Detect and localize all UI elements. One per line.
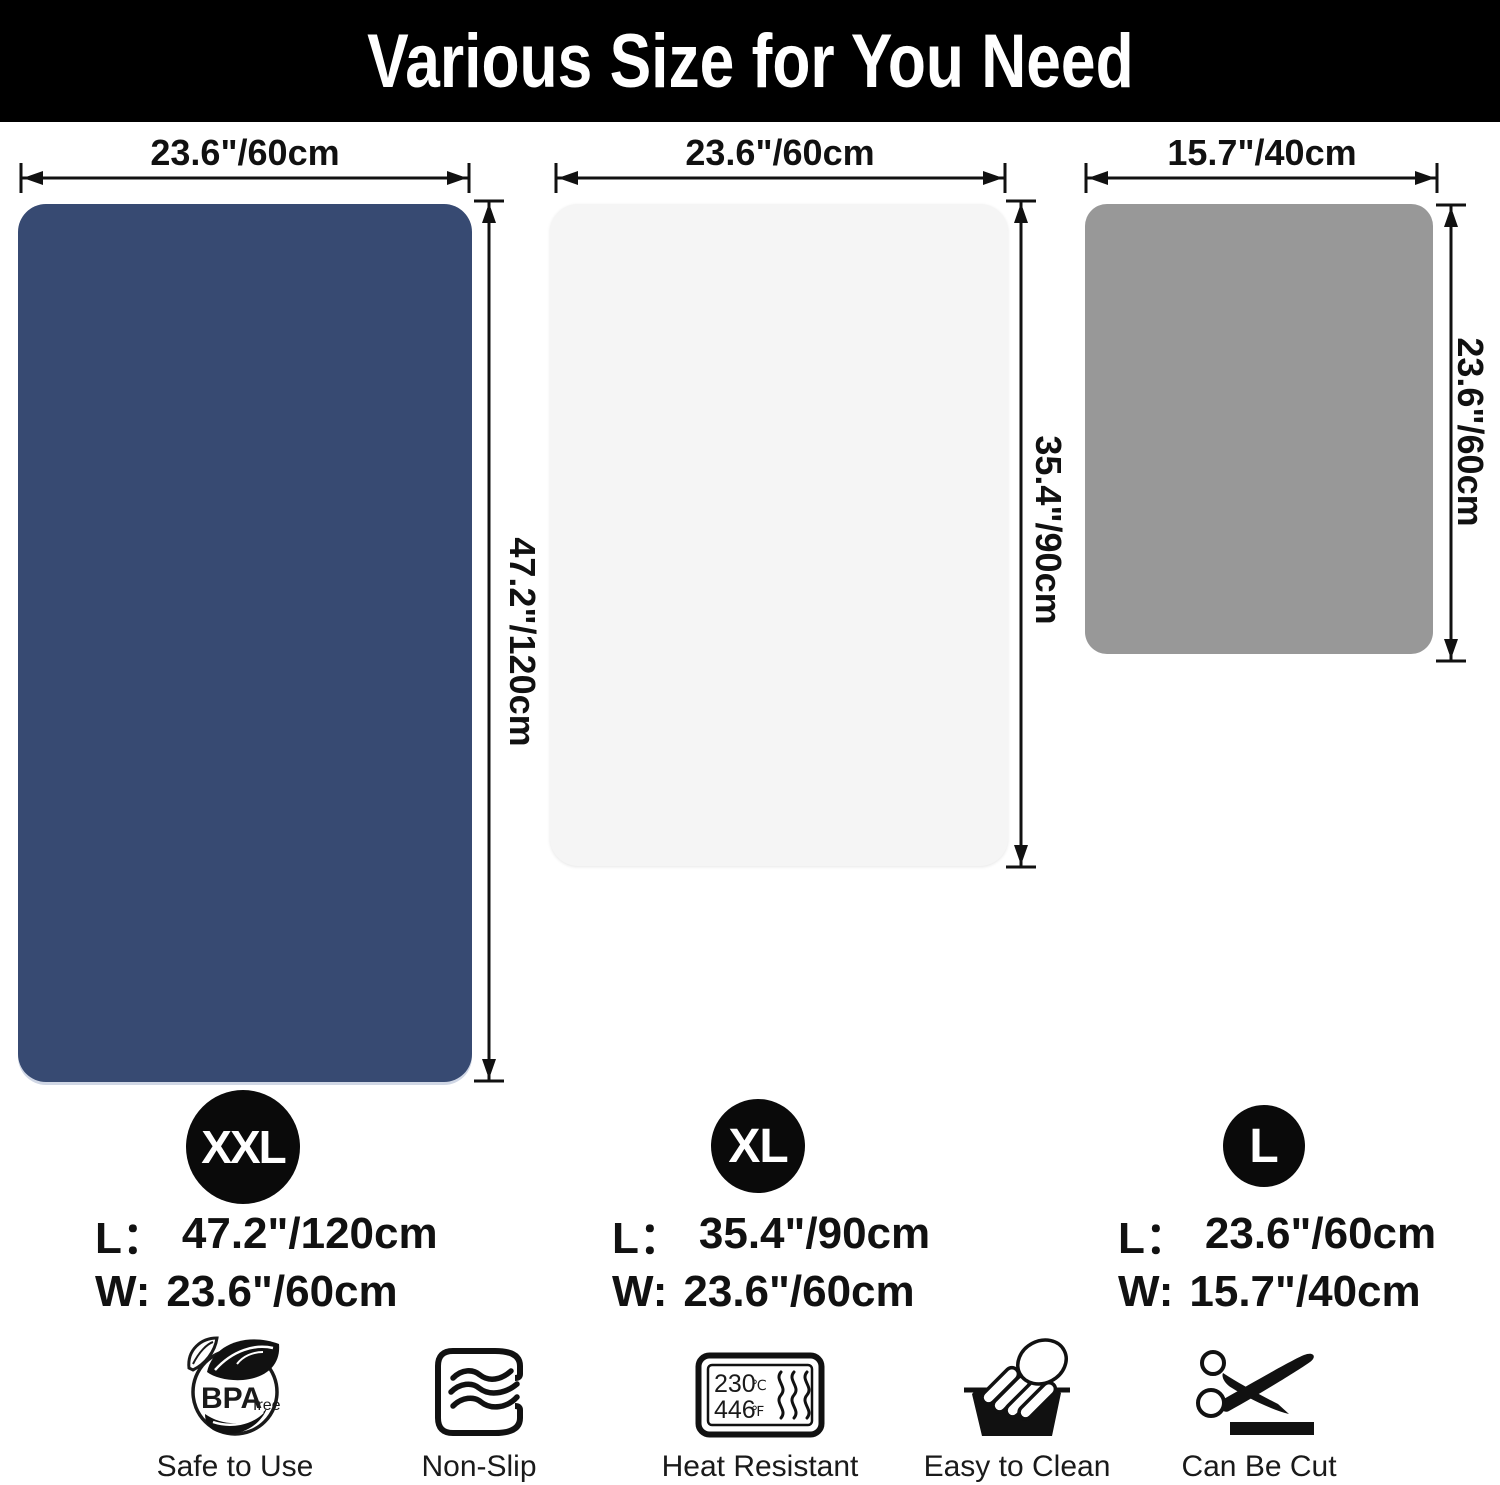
size-badge-l: L xyxy=(1223,1105,1305,1187)
spec-length-value: 35.4"/90cm xyxy=(699,1209,930,1259)
l-width-dimension-arrow xyxy=(1083,160,1440,196)
feature-safe-to-use: BPA free Safe to Use xyxy=(105,1328,365,1484)
xxl-length-dim-label: 47.2"/120cm xyxy=(501,537,543,746)
xl-width-dimension-arrow xyxy=(553,160,1008,196)
feature-label: Non-Slip xyxy=(421,1450,536,1484)
feature-non-slip: Non-Slip xyxy=(349,1328,609,1484)
spec-length-value: 23.6"/60cm xyxy=(1205,1209,1436,1259)
mat-xl xyxy=(550,204,1008,866)
spec-width-row: W: 23.6"/60cm xyxy=(612,1263,930,1321)
spec-width-row: W: 23.6"/60cm xyxy=(95,1263,438,1321)
size-spec-xl: L： 35.4"/90cm W: 23.6"/60cm xyxy=(612,1205,930,1321)
spec-width-value: 23.6"/60cm xyxy=(166,1267,397,1317)
spec-length-label: L： xyxy=(1118,1202,1189,1266)
feature-label: Easy to Clean xyxy=(924,1450,1111,1484)
temp-fahrenheit-unit: ℉ xyxy=(751,1403,764,1419)
size-badge-xxl: XXL xyxy=(186,1090,300,1204)
xl-length-dim-label: 35.4"/90cm xyxy=(1027,435,1069,624)
size-spec-l: L： 23.6"/60cm W: 15.7"/40cm xyxy=(1118,1205,1436,1321)
non-slip-icon xyxy=(433,1328,525,1442)
spec-width-row: W: 15.7"/40cm xyxy=(1118,1263,1436,1321)
l-length-dim-label: 23.6"/60cm xyxy=(1449,337,1491,526)
bpa-free-icon: BPA free xyxy=(177,1328,293,1442)
mat-l xyxy=(1085,204,1433,654)
hand-wash-icon xyxy=(958,1328,1076,1442)
spec-length-label: L： xyxy=(95,1202,166,1266)
temp-celsius-value: 230 xyxy=(714,1370,756,1398)
spec-width-label: W: xyxy=(612,1267,667,1317)
temp-celsius-unit: ℃ xyxy=(751,1377,767,1393)
header-bar: Various Size for You Need xyxy=(0,0,1500,122)
feature-label: Can Be Cut xyxy=(1181,1450,1336,1484)
size-badge-xl: XL xyxy=(711,1099,805,1193)
spec-width-value: 15.7"/40cm xyxy=(1189,1267,1420,1317)
page-title: Various Size for You Need xyxy=(367,18,1134,105)
xxl-width-dimension-arrow xyxy=(18,160,472,196)
feature-heat-resistant: 230 ℃ 446 ℉ Heat Resistant xyxy=(630,1328,890,1484)
feature-label: Heat Resistant xyxy=(662,1450,859,1484)
spec-width-label: W: xyxy=(95,1267,150,1317)
temp-fahrenheit-value: 446 xyxy=(714,1396,756,1424)
mat-xxl xyxy=(18,204,472,1082)
spec-width-value: 23.6"/60cm xyxy=(683,1267,914,1317)
heat-resistant-icon: 230 ℃ 446 ℉ xyxy=(695,1328,825,1442)
spec-length-row: L： 23.6"/60cm xyxy=(1118,1205,1436,1263)
free-text: free xyxy=(253,1397,281,1414)
feature-can-be-cut: Can Be Cut xyxy=(1129,1328,1389,1484)
spec-length-row: L： 35.4"/90cm xyxy=(612,1205,930,1263)
spec-length-row: L： 47.2"/120cm xyxy=(95,1205,438,1263)
scissors-icon xyxy=(1196,1328,1322,1442)
spec-length-label: L： xyxy=(612,1202,683,1266)
feature-label: Safe to Use xyxy=(157,1450,314,1484)
spec-width-label: W: xyxy=(1118,1267,1173,1317)
spec-length-value: 47.2"/120cm xyxy=(182,1209,438,1259)
feature-easy-to-clean: Easy to Clean xyxy=(887,1328,1147,1484)
size-spec-xxl: L： 47.2"/120cm W: 23.6"/60cm xyxy=(95,1205,438,1321)
size-infographic: Various Size for You Need 23.6"/60cm 23.… xyxy=(0,0,1500,1485)
